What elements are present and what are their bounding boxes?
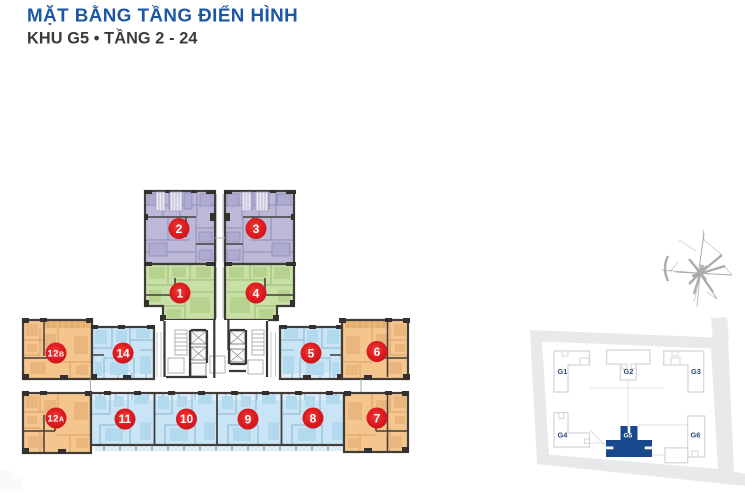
svg-text:9: 9 [245, 412, 252, 426]
svg-text:8: 8 [310, 411, 317, 425]
svg-text:11: 11 [119, 412, 132, 426]
svg-text:10: 10 [180, 412, 194, 426]
svg-text:G3: G3 [691, 367, 701, 376]
svg-text:3: 3 [253, 222, 260, 236]
svg-text:G4: G4 [558, 431, 569, 440]
svg-text:4: 4 [253, 286, 260, 300]
svg-text:MẶT BẰNG TẦNG ĐIỂN HÌNH: MẶT BẰNG TẦNG ĐIỂN HÌNH [27, 5, 298, 26]
svg-text:G5: G5 [624, 433, 633, 440]
svg-text:G6: G6 [691, 431, 701, 440]
svg-text:KHU G5 • TẦNG 2 - 24: KHU G5 • TẦNG 2 - 24 [27, 29, 198, 48]
svg-text:G1: G1 [558, 367, 568, 376]
svg-text:14: 14 [116, 346, 130, 360]
svg-text:6: 6 [374, 345, 381, 359]
svg-text:G2: G2 [624, 367, 634, 376]
svg-text:1: 1 [177, 286, 184, 300]
svg-text:7: 7 [374, 411, 381, 425]
svg-text:2: 2 [176, 222, 183, 236]
svg-text:5: 5 [308, 346, 315, 360]
